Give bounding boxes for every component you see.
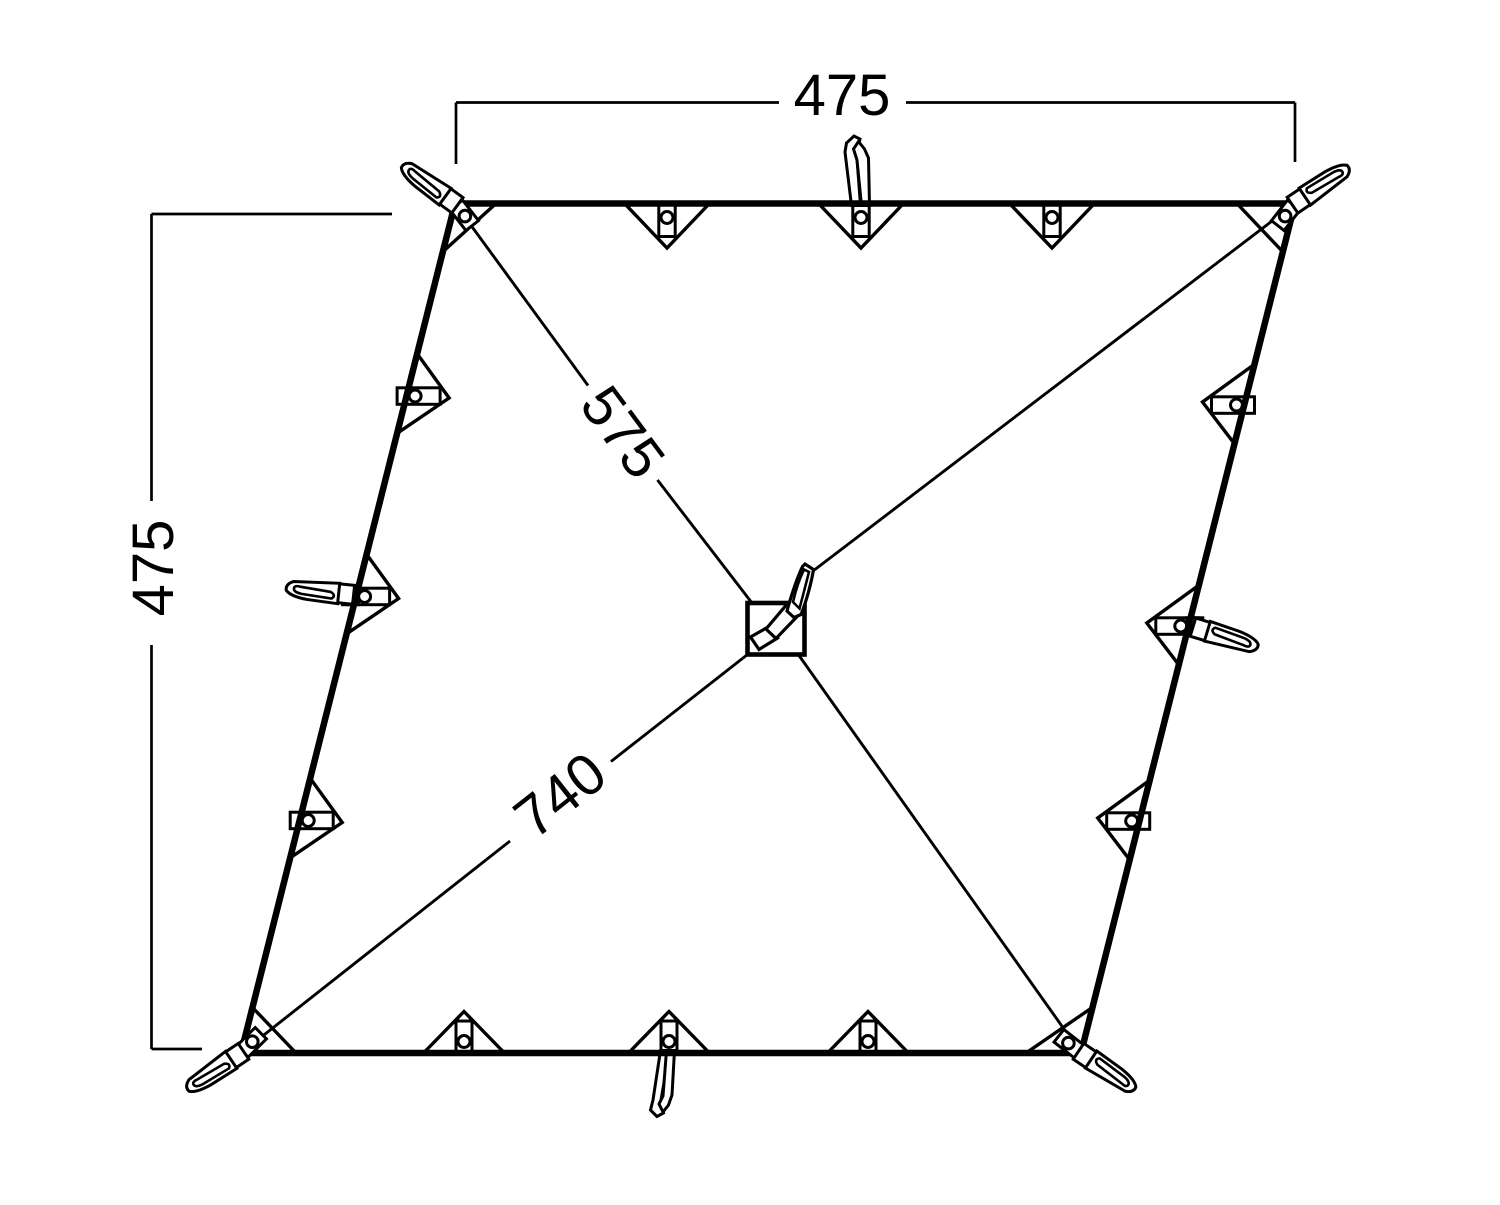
svg-text:475: 475: [121, 520, 186, 617]
svg-text:475: 475: [794, 63, 891, 128]
